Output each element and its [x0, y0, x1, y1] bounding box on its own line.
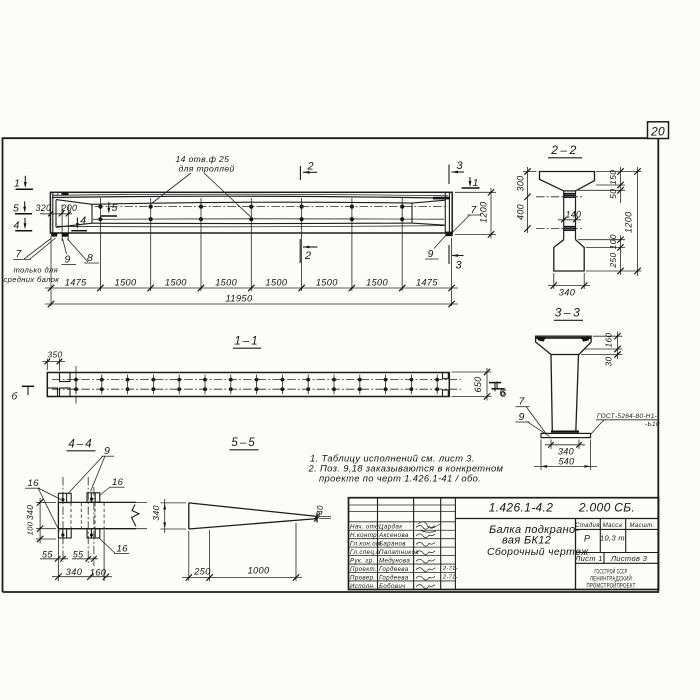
svg-text:7: 7	[471, 204, 478, 216]
svg-text:30: 30	[604, 356, 614, 366]
svg-text:540: 540	[558, 456, 574, 466]
svg-text:650: 650	[473, 376, 483, 392]
svg-text:ГОССТРОЙ СССР: ГОССТРОЙ СССР	[595, 567, 628, 575]
svg-text:16: 16	[28, 478, 40, 489]
svg-text:1500: 1500	[316, 278, 338, 288]
svg-text:1500: 1500	[115, 278, 137, 288]
svg-text:350: 350	[48, 350, 63, 360]
svg-text:10,3 т: 10,3 т	[600, 534, 625, 543]
svg-text:11950: 11950	[225, 293, 253, 304]
svg-text:100: 100	[608, 234, 618, 249]
svg-text:340: 340	[558, 447, 574, 457]
svg-text:16: 16	[112, 477, 124, 488]
svg-text:Стадия: Стадия	[575, 523, 600, 529]
svg-text:4–4: 4–4	[68, 439, 93, 451]
svg-text:160: 160	[604, 332, 614, 347]
svg-text:Гордеева: Гордеева	[379, 574, 409, 581]
svg-text:4: 4	[14, 219, 20, 231]
svg-text:Масшт.: Масшт.	[629, 523, 654, 529]
svg-text:для троллей: для троллей	[179, 164, 235, 174]
svg-text:2.000 СБ.: 2.000 СБ.	[578, 501, 635, 515]
svg-text:Гл.кон.от: Гл.кон.от	[350, 541, 382, 548]
svg-text:3: 3	[456, 260, 463, 272]
svg-text:9: 9	[65, 254, 71, 266]
svg-text:5–5: 5–5	[231, 437, 256, 449]
svg-text:2: 2	[307, 160, 314, 172]
svg-text:5: 5	[112, 202, 118, 214]
svg-text:300: 300	[516, 175, 526, 191]
svg-text:340: 340	[25, 505, 35, 520]
svg-text:16: 16	[117, 544, 129, 555]
svg-text:Гордеева: Гордеева	[379, 566, 409, 573]
svg-text:9: 9	[428, 248, 434, 260]
svg-text:Аксенова: Аксенова	[378, 532, 409, 539]
svg-text:ЛЕНИНГРАДСКИЙ: ЛЕНИНГРАДСКИЙ	[590, 574, 632, 583]
svg-text:1–1: 1–1	[234, 336, 259, 348]
svg-text:50: 50	[608, 189, 618, 199]
svg-text:150: 150	[608, 170, 618, 185]
svg-text:только для: только для	[14, 266, 59, 275]
svg-text:Проект.: Проект.	[350, 566, 377, 573]
svg-text:1475: 1475	[416, 278, 438, 288]
svg-text:2–2: 2–2	[550, 143, 579, 157]
svg-text:ПРОМСТРОЙПРОЕКТ: ПРОМСТРОЙПРОЕКТ	[587, 581, 636, 590]
svg-text:1475: 1475	[65, 278, 87, 288]
svg-text:Гл.спец.о: Гл.спец.о	[350, 549, 380, 556]
svg-text:1500: 1500	[366, 278, 388, 288]
svg-text:400: 400	[516, 204, 526, 220]
svg-text:Лист 1: Лист 1	[574, 554, 603, 563]
svg-text:Провер.: Провер.	[350, 574, 376, 581]
svg-text:Медунова: Медунова	[379, 557, 410, 564]
svg-text:250: 250	[608, 252, 618, 268]
svg-text:2-71-: 2-71-	[442, 566, 458, 572]
svg-text:7: 7	[16, 248, 23, 260]
svg-text:1500: 1500	[215, 278, 237, 288]
svg-text:1200: 1200	[478, 202, 488, 223]
svg-text:2: 2	[304, 250, 311, 262]
svg-text:9: 9	[519, 411, 525, 423]
svg-text:14 отв.ф 25: 14 отв.ф 25	[176, 154, 230, 164]
svg-text:Нач. отд: Нач. отд	[350, 524, 379, 531]
svg-text:б: б	[501, 388, 507, 400]
svg-text:Масса: Масса	[603, 523, 623, 529]
svg-text:140: 140	[566, 209, 582, 219]
svg-text:40: 40	[316, 505, 325, 515]
svg-text:Листов 3: Листов 3	[610, 554, 648, 563]
svg-text:Бобович: Бобович	[379, 583, 406, 590]
svg-text:1: 1	[473, 177, 479, 189]
svg-text:340: 340	[559, 287, 576, 297]
svg-text:9: 9	[104, 445, 110, 457]
svg-text:7: 7	[519, 396, 526, 408]
svg-text:-Ь10: -Ь10	[645, 421, 660, 428]
svg-text:Сборочный чертеж: Сборочный чертеж	[487, 546, 589, 558]
svg-text:1: 1	[14, 177, 20, 189]
svg-text:340: 340	[151, 505, 161, 520]
svg-text:1200: 1200	[623, 212, 633, 233]
svg-text:5: 5	[13, 202, 19, 214]
svg-text:Баранов: Баранов	[379, 541, 406, 548]
svg-text:3–3: 3–3	[555, 306, 583, 320]
svg-text:Палатников: Палатников	[379, 549, 419, 556]
svg-text:проекте по черт 1.426.1-41 / о: проекте по черт 1.426.1-41 / обо.	[319, 472, 481, 483]
svg-text:Рук. гр.: Рук. гр.	[350, 557, 375, 564]
svg-text:55: 55	[73, 549, 84, 559]
svg-text:4: 4	[80, 214, 86, 226]
svg-text:250: 250	[193, 566, 211, 576]
svg-text:100: 100	[26, 521, 35, 535]
svg-text:вая БК12: вая БК12	[502, 535, 551, 547]
svg-text:2-71-: 2-71-	[442, 575, 458, 581]
svg-text:б: б	[12, 391, 18, 403]
svg-text:8: 8	[87, 252, 93, 264]
svg-text:1000: 1000	[248, 566, 270, 576]
svg-text:1500: 1500	[165, 278, 187, 288]
svg-text:20: 20	[650, 125, 665, 139]
svg-text:3: 3	[457, 160, 464, 172]
svg-text:Цардак: Цардак	[379, 524, 403, 531]
svg-text:Н.контр.: Н.контр.	[350, 532, 379, 539]
svg-text:320: 320	[36, 203, 52, 213]
svg-text:Исполн.: Исполн.	[350, 583, 375, 590]
svg-text:55: 55	[42, 549, 53, 559]
svg-text:1.426.1-4.2: 1.426.1-4.2	[489, 501, 554, 515]
svg-text:средних балок: средних балок	[4, 275, 60, 284]
svg-text:340: 340	[66, 567, 83, 577]
svg-text:Р: Р	[584, 534, 590, 544]
svg-text:ГОСТ-5264-80-Н1-: ГОСТ-5264-80-Н1-	[597, 413, 657, 420]
svg-text:1500: 1500	[266, 278, 288, 288]
svg-text:160: 160	[90, 567, 107, 577]
